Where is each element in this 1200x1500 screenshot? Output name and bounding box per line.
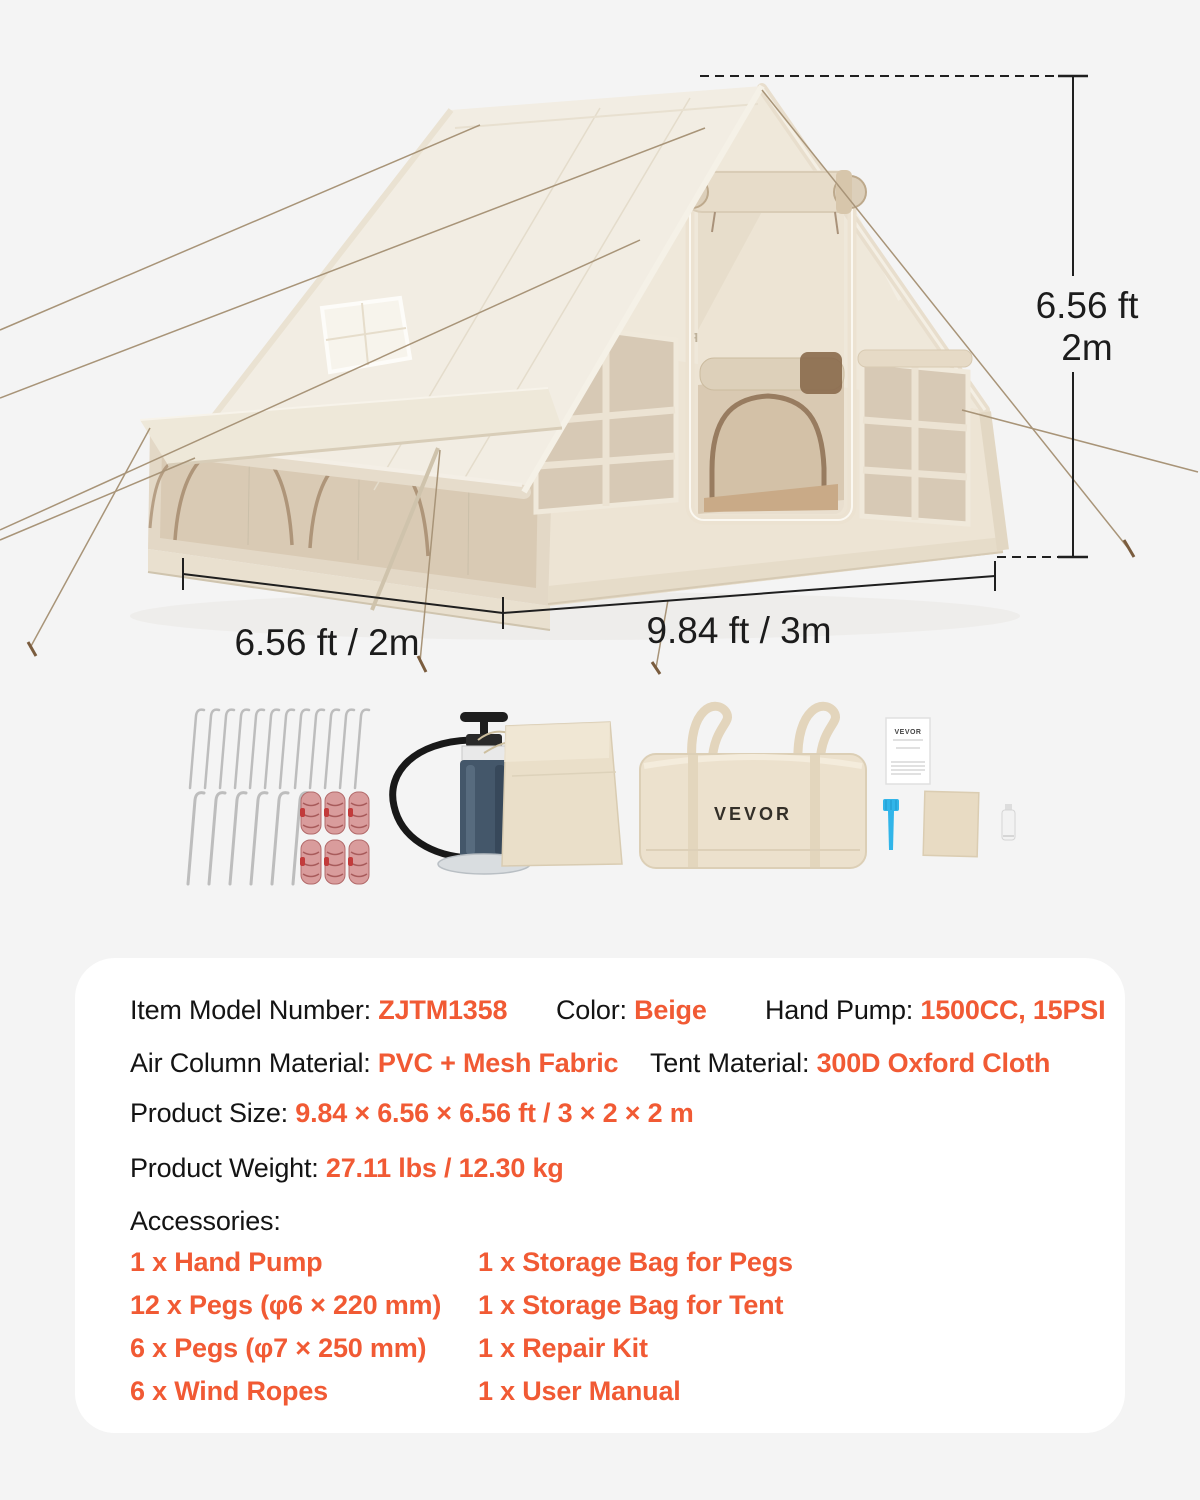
repair-kit [883,791,1015,856]
spec-model-label: Item Model Number: [130,995,378,1025]
spec-product-size: Product Size: 9.84 × 6.56 × 6.56 ft / 3 … [130,1097,694,1129]
spec-tent-material: Tent Material: 300D Oxford Cloth [650,1047,1050,1079]
spec-color-value: Beige [634,995,707,1025]
accessory-item: 1 x Storage Bag for Pegs [478,1246,793,1278]
tent-door [676,170,866,520]
roof-window [322,298,410,372]
spec-tent-material-value: 300D Oxford Cloth [817,1048,1051,1078]
spec-model-value: ZJTM1358 [378,995,507,1025]
spec-product-size-label: Product Size: [130,1098,295,1128]
spec-color-label: Color: [556,995,634,1025]
spec-product-weight-label: Product Weight: [130,1153,326,1183]
accessories-title: Accessories: [130,1205,281,1237]
spec-hand-pump-label: Hand Pump: [765,995,920,1025]
accessory-item: 6 x Pegs (φ7 × 250 mm) [130,1332,426,1364]
manual-logo: VEVOR [894,729,921,736]
spec-hand-pump-value: 1500CC, 15PSI [920,995,1105,1025]
accessory-item: 1 x Hand Pump [130,1246,322,1278]
spec-air-column-value: PVC + Mesh Fabric [378,1048,618,1078]
tent-diagram: VEVOR [0,0,1200,958]
repair-patch [923,791,979,856]
accessory-item: 1 x Repair Kit [478,1332,648,1364]
spec-air-column-label: Air Column Material: [130,1048,378,1078]
accessory-item: 1 x User Manual [478,1375,681,1407]
accessory-item: 1 x Storage Bag for Tent [478,1289,783,1321]
spec-hand-pump: Hand Pump: 1500CC, 15PSI [765,994,1105,1026]
repair-glue-tube [1002,804,1015,840]
accessory-item: 12 x Pegs (φ6 × 220 mm) [130,1289,441,1321]
spec-product-weight: Product Weight: 27.11 lbs / 12.30 kg [130,1152,564,1184]
front-window-right [858,350,972,524]
spec-model: Item Model Number: ZJTM1358 [130,994,507,1026]
tent-bag-logo: VEVOR [714,804,792,824]
product-infographic: VEVOR [0,0,1200,1500]
tent-storage-bag: VEVOR [640,706,866,868]
wind-ropes [300,792,369,884]
height-label-m: 2m [1061,327,1112,368]
width-label: 6.56 ft / 2m [234,622,419,663]
pegs-large [188,793,309,884]
spec-product-size-value: 9.84 × 6.56 × 6.56 ft / 3 × 2 × 2 m [295,1098,693,1128]
repair-valve-tool [883,799,899,850]
spec-color: Color: Beige [556,994,707,1026]
spec-air-column: Air Column Material: PVC + Mesh Fabric [130,1047,618,1079]
accessory-item: 6 x Wind Ropes [130,1375,328,1407]
spec-product-weight-value: 27.11 lbs / 12.30 kg [326,1153,564,1183]
height-label-ft: 6.56 ft [1036,285,1140,326]
pegs-small [190,710,369,788]
user-manual: VEVOR [886,718,930,784]
spec-tent-material-label: Tent Material: [650,1048,817,1078]
spec-panel: Item Model Number: ZJTM1358 Color: Beige… [75,958,1125,1433]
length-label: 9.84 ft / 3m [646,610,831,651]
